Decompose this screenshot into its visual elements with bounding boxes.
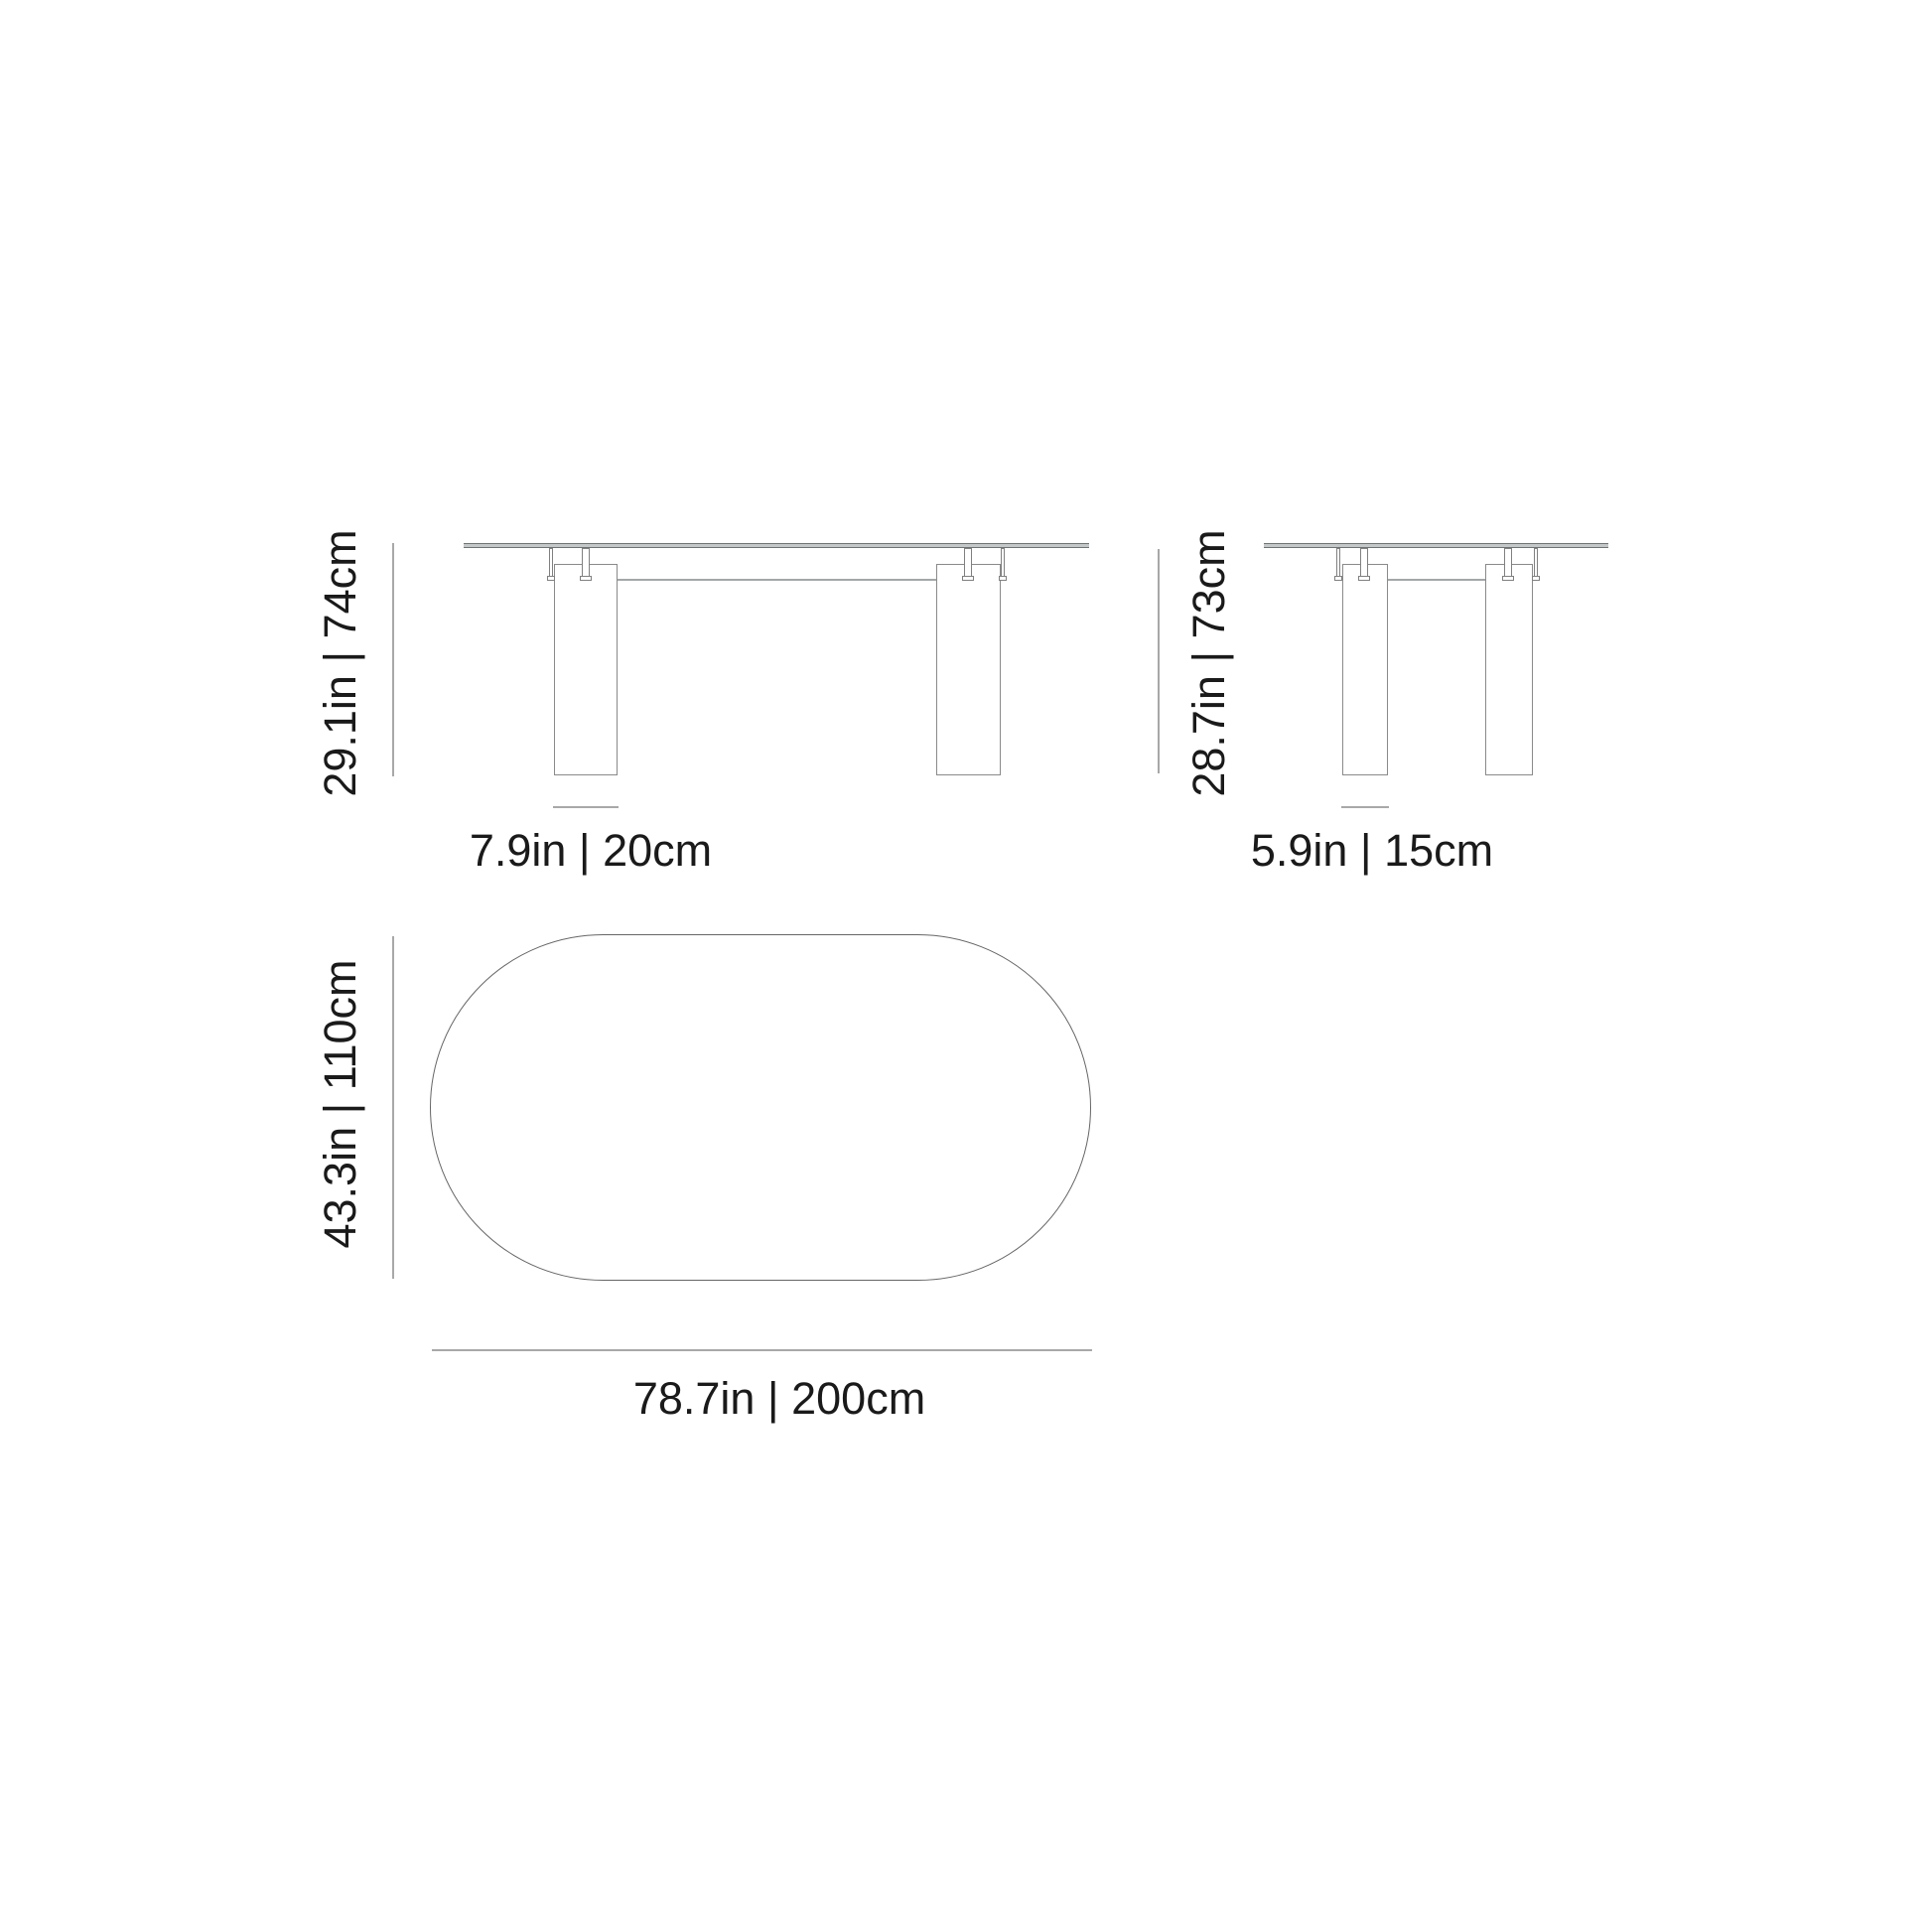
side-left-leg — [1342, 564, 1388, 775]
front-leg-width-tick — [553, 806, 619, 808]
side-right-leg-outer-pin — [1534, 548, 1538, 578]
front-left-leg-outer-pin-foot — [547, 576, 555, 581]
side-right-leg-inner-pin-foot — [1502, 576, 1514, 581]
side-left-leg-outer-pin — [1336, 548, 1340, 578]
front-left-leg-inner-pin-foot — [580, 576, 592, 581]
front-right-leg — [936, 564, 1001, 775]
front-height-label: 29.1in | 74cm — [315, 514, 366, 812]
front-tabletop — [464, 543, 1089, 548]
dimension-drawing-canvas: 29.1in | 74cm 7.9in | 20cm 28.7in | 73cm — [0, 0, 1932, 1932]
top-depth-label: 43.3in | 110cm — [315, 945, 366, 1263]
front-right-leg-outer-pin-foot — [999, 576, 1007, 581]
side-left-leg-inner-pin-foot — [1358, 576, 1370, 581]
side-height-label: 28.7in | 73cm — [1183, 514, 1235, 812]
top-width-dimension-line — [432, 1349, 1092, 1351]
side-right-leg — [1485, 564, 1533, 775]
front-left-leg-inner-pin — [582, 548, 590, 578]
side-stretcher-line — [1388, 579, 1485, 581]
front-left-leg — [554, 564, 618, 775]
top-depth-dimension-line — [392, 936, 394, 1279]
front-leg-width-label: 7.9in | 20cm — [442, 825, 740, 877]
side-right-leg-outer-pin-foot — [1532, 576, 1540, 581]
front-right-leg-inner-pin-foot — [962, 576, 974, 581]
side-leg-depth-label: 5.9in | 15cm — [1223, 825, 1521, 877]
side-tabletop — [1264, 543, 1608, 548]
side-left-leg-outer-pin-foot — [1334, 576, 1342, 581]
front-right-leg-inner-pin — [964, 548, 972, 578]
side-leg-depth-tick — [1341, 806, 1389, 808]
front-height-dimension-line — [392, 543, 394, 776]
top-width-label: 78.7in | 200cm — [621, 1373, 938, 1425]
front-right-leg-outer-pin — [1001, 548, 1005, 578]
top-oval-tabletop-outline — [430, 934, 1091, 1281]
side-right-leg-inner-pin — [1504, 548, 1512, 578]
side-left-leg-inner-pin — [1360, 548, 1368, 578]
side-height-dimension-line — [1158, 549, 1160, 773]
front-left-leg-outer-pin — [549, 548, 553, 578]
front-stretcher-line — [618, 579, 936, 581]
